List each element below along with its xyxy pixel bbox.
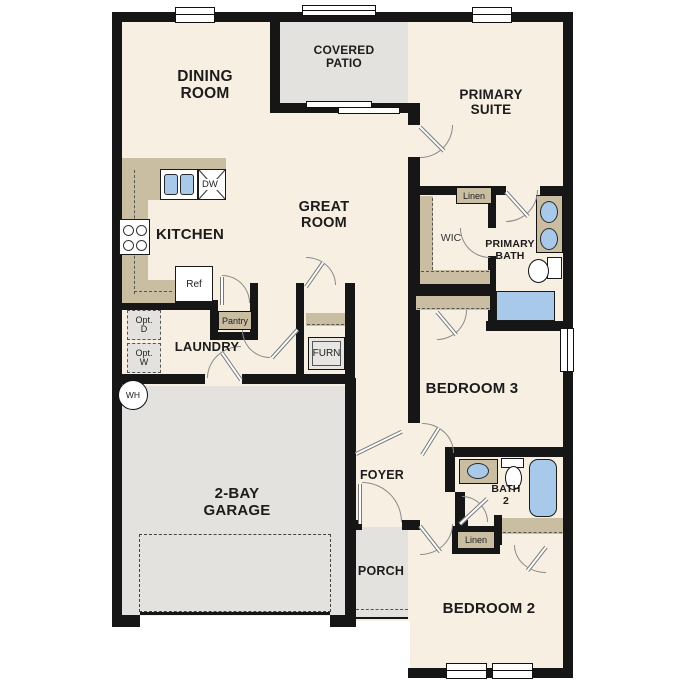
refrigerator: Ref (175, 266, 213, 302)
primary-toilet-tank (547, 257, 562, 279)
optional-dryer: Opt. D (127, 310, 161, 340)
counter-dash-line (134, 291, 172, 292)
bedroom3-shelf-dash (417, 308, 489, 309)
furnace-label: FURN (313, 348, 341, 359)
furnace-closet-wall (345, 283, 355, 378)
furnace-shelf-dash (307, 324, 344, 325)
porch-step-dash (356, 609, 408, 610)
wic-shelf-dash (421, 271, 489, 272)
pantry-label: Pantry (222, 316, 248, 326)
exterior-wall-bottom-bedroom2 (408, 668, 573, 678)
primary-bath-label: PRIMARY BATH (478, 239, 542, 263)
interior-wall (408, 284, 492, 296)
optional-dryer-label: Opt. D (135, 316, 152, 335)
porch-edge-line (356, 617, 408, 619)
primary-bath-sink (540, 228, 558, 250)
bedroom2-window (446, 663, 487, 679)
linen-label: Linen (463, 191, 485, 201)
interior-wall (402, 520, 408, 530)
porch-label: PORCH (340, 564, 422, 578)
dishwasher-label: DW (201, 179, 219, 190)
laundry-label: LAUNDRY (147, 340, 267, 355)
kitchen-sink (160, 169, 198, 200)
floor-plan: DW Ref Opt. D Opt. W WH FURN Linen Linen… (0, 0, 687, 687)
garage-door-outline (139, 534, 331, 612)
pantry-door (220, 277, 224, 305)
wic-shelf-bottom (420, 270, 490, 284)
interior-wall (408, 103, 420, 125)
bath2-tub (529, 459, 557, 517)
bedroom2-label: BEDROOM 2 (418, 601, 560, 618)
interior-wall (486, 321, 563, 331)
dining-room-label: DINING ROOM (148, 68, 262, 103)
furnace-unit: FURN (308, 337, 345, 370)
water-heater: WH (118, 380, 148, 410)
primary-shower (496, 291, 555, 321)
primary-toilet-bowl (528, 259, 549, 283)
primary-suite-window (472, 7, 512, 23)
bath2-label: BATH 2 (486, 484, 526, 508)
patio-window (302, 5, 376, 16)
patio-sliding-door (338, 107, 400, 114)
sink-basin (164, 174, 178, 195)
bedroom3-label: BEDROOM 3 (402, 381, 542, 398)
bedroom3-window (560, 328, 574, 372)
primary-suite-label: PRIMARY SUITE (432, 87, 550, 117)
exterior-mask (112, 627, 355, 687)
garage-label: 2-BAY GARAGE (167, 486, 307, 520)
linen-label: Linen (465, 535, 487, 545)
kitchen-label: KITCHEN (130, 227, 250, 244)
primary-bath-sink (540, 201, 558, 223)
sink-basin (180, 174, 194, 195)
interior-wall (408, 310, 420, 423)
dishwasher: DW (198, 169, 226, 200)
wic-label: WIC (428, 233, 474, 245)
primary-linen-closet: Linen (456, 187, 492, 204)
exterior-mask (348, 621, 410, 687)
interior-wall (408, 520, 420, 530)
water-heater-label: WH (126, 390, 140, 400)
pantry-shelf: Pantry (218, 311, 252, 330)
front-door (358, 484, 362, 524)
covered-patio-label: COVERED PATIO (294, 44, 394, 71)
bedroom2-shelf-dash (503, 532, 562, 533)
patio-wall-left (270, 12, 280, 113)
bath2-sink (467, 463, 489, 479)
refrigerator-label: Ref (186, 279, 202, 290)
bedroom2-window (492, 663, 533, 679)
garage-door-line (140, 612, 330, 615)
interior-wall (408, 195, 420, 284)
interior-wall (540, 186, 563, 195)
exterior-wall-left (112, 12, 122, 627)
bedroom2-closet-wall (494, 515, 502, 545)
interior-wall (445, 447, 455, 492)
garage-door-stub (112, 615, 140, 627)
dining-window (175, 7, 215, 23)
garage-wall-top (242, 374, 355, 384)
hall-linen-closet: Linen (458, 532, 494, 548)
great-room-label: GREAT ROOM (264, 199, 384, 231)
interior-wall (452, 447, 563, 457)
foyer-label: FOYER (342, 468, 422, 482)
furnace-closet-wall (296, 283, 304, 374)
